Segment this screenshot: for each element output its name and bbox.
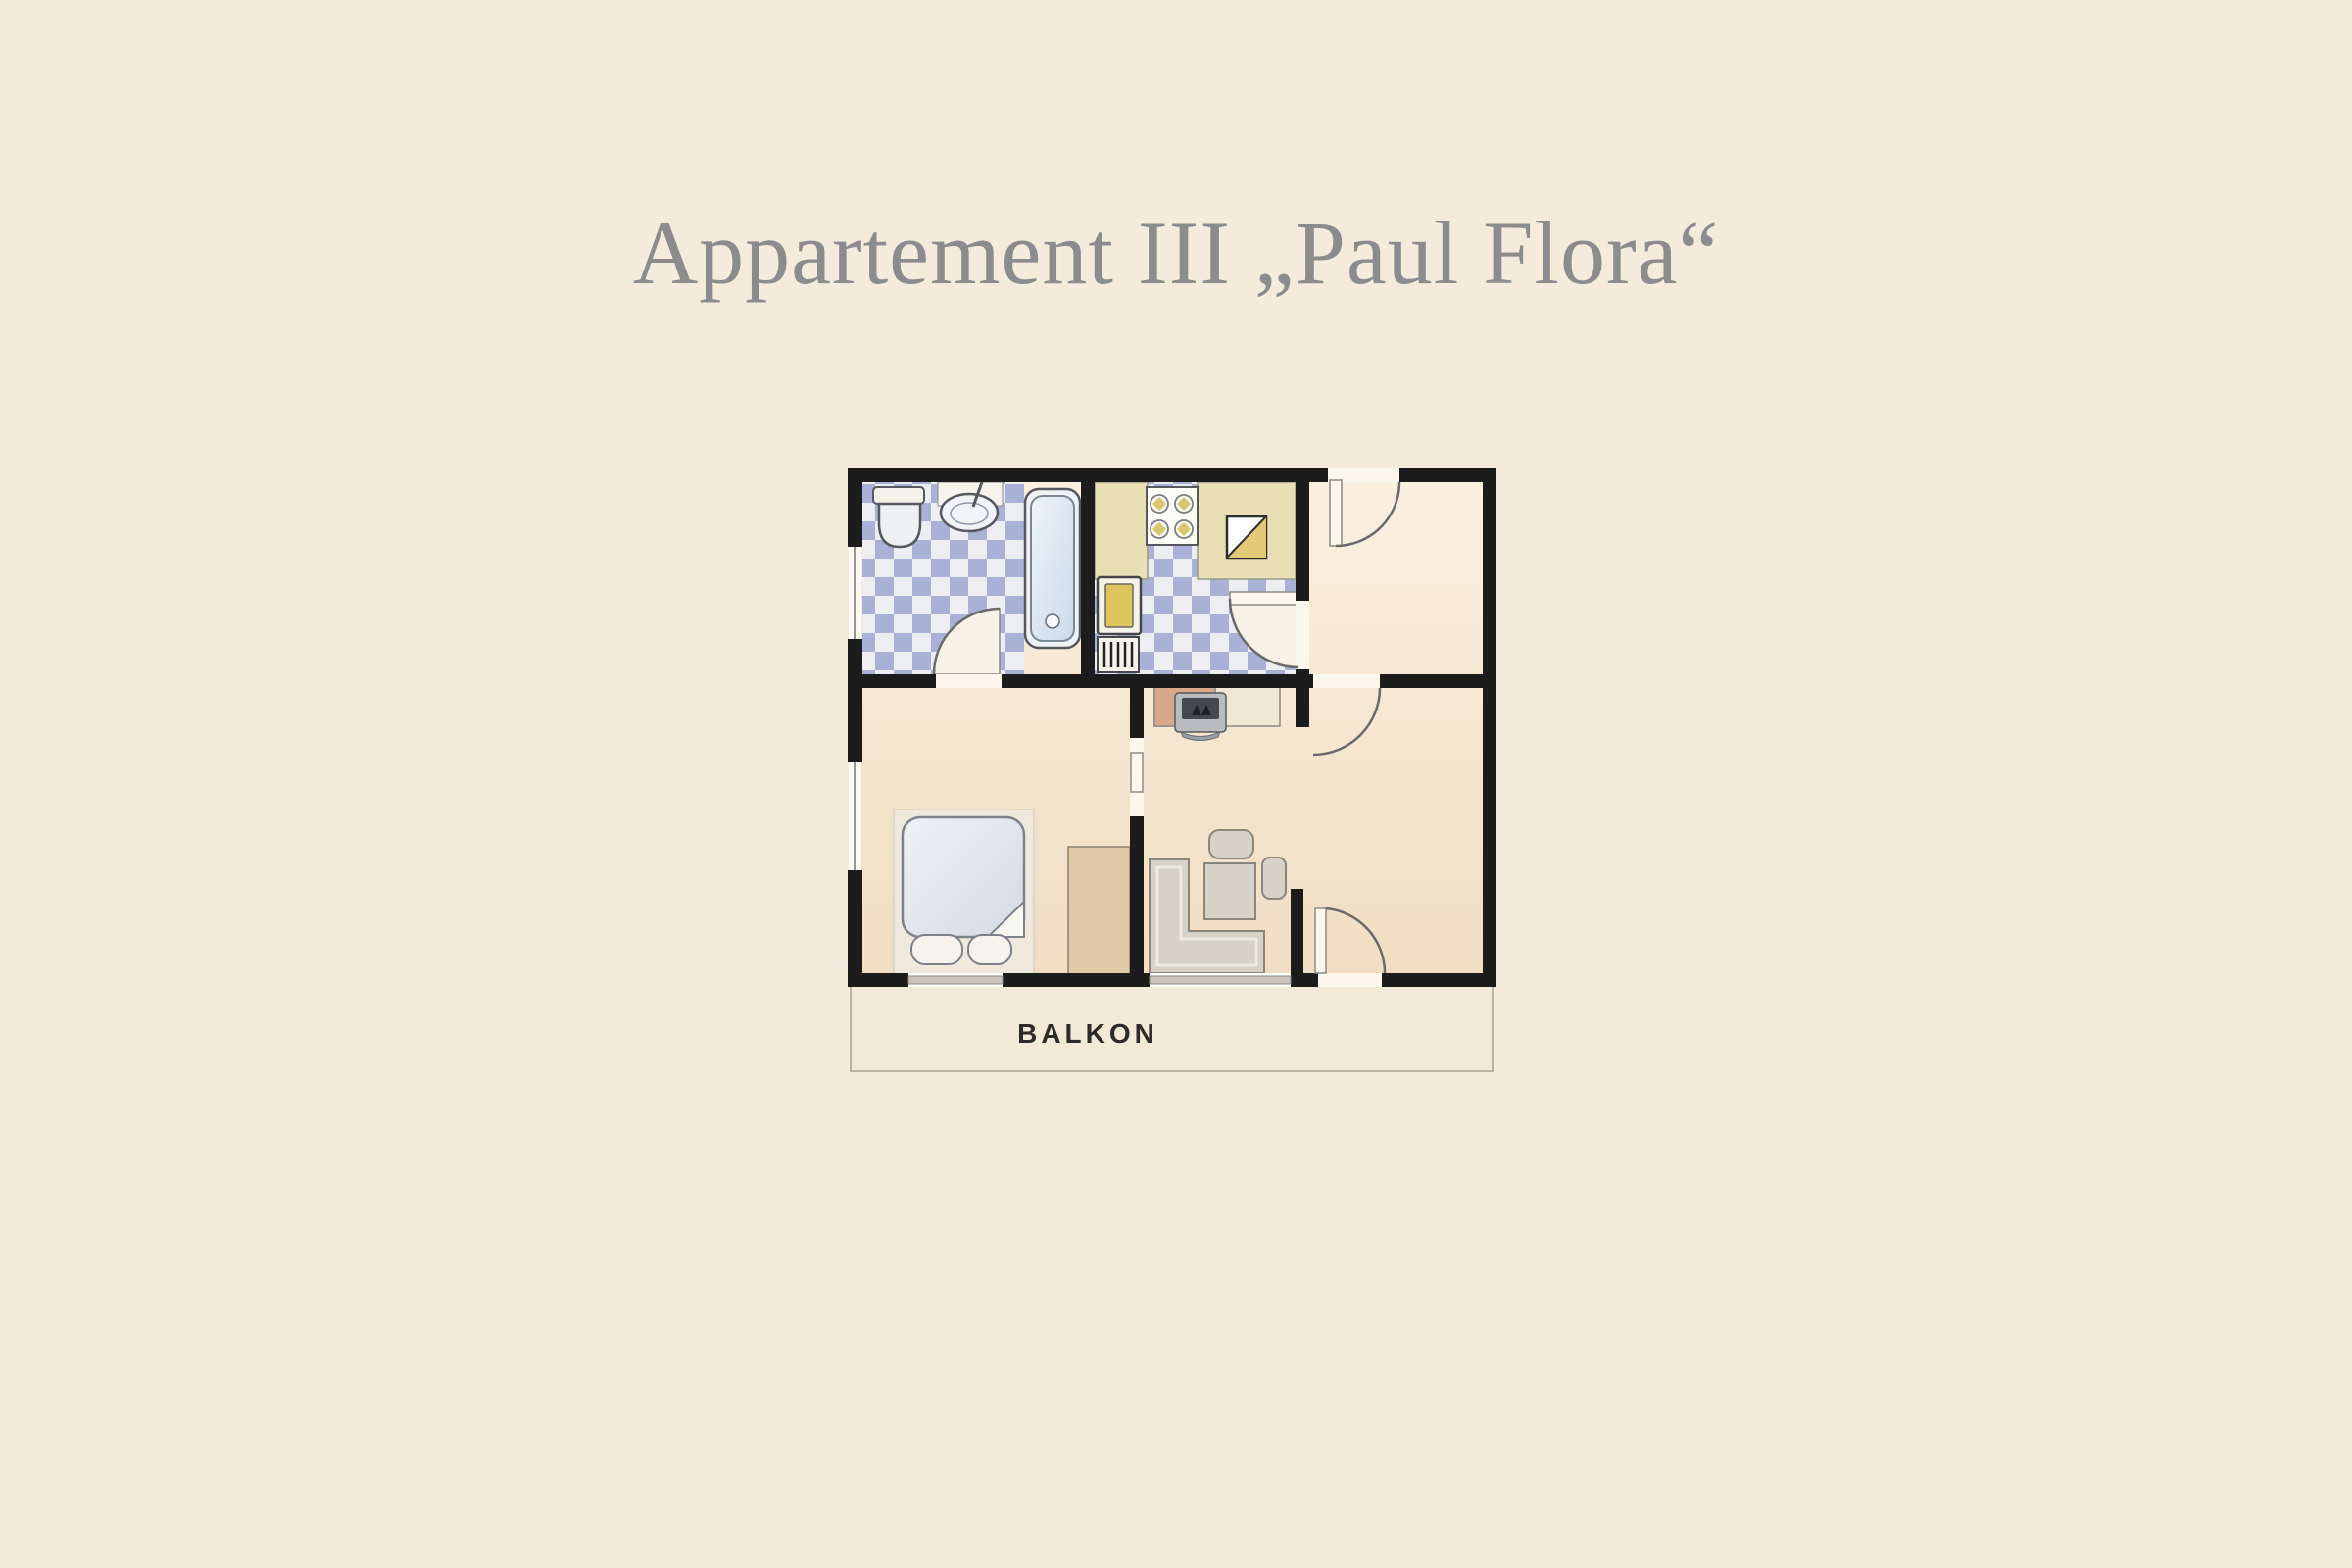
bathroom-door-opening [936,674,1002,688]
kitchen-door-opening [1296,601,1309,669]
wall-pier [1291,889,1303,987]
wardrobe [1068,847,1130,976]
table [1204,863,1255,919]
chair [1262,857,1286,899]
pillow [968,935,1011,964]
balcony-area [851,980,1493,1071]
bathtub-drain [1046,614,1059,628]
balcony-door-opening [1318,973,1382,987]
page: Appartement III „Paul Flora“ [0,0,2352,1568]
kitchen-sink [1227,516,1266,558]
kitchen-counter-left [1095,482,1148,579]
bedroom-living-door-leaf [1131,753,1143,792]
radiator [1098,637,1139,672]
kitchen-door-leaf [1230,592,1298,605]
hall-living-door-opening [1313,674,1380,688]
washbasin [938,482,1003,531]
balcony-label: BALKON [1017,1018,1158,1049]
toilet [873,487,924,547]
bedroom-window-left [849,762,861,870]
bedroom-window-bottom [908,973,1003,987]
floor-plan: BALKON [0,0,2352,1568]
bathtub [1025,489,1080,648]
living-window-bottom [1150,973,1291,987]
balcony: BALKON [851,980,1493,1071]
bathroom-window [849,547,861,639]
kitchen [1095,482,1298,674]
bathroom [862,482,1080,674]
refrigerator [1098,577,1141,634]
stove [1147,487,1198,545]
bench [1209,830,1253,858]
pillow [911,935,962,964]
